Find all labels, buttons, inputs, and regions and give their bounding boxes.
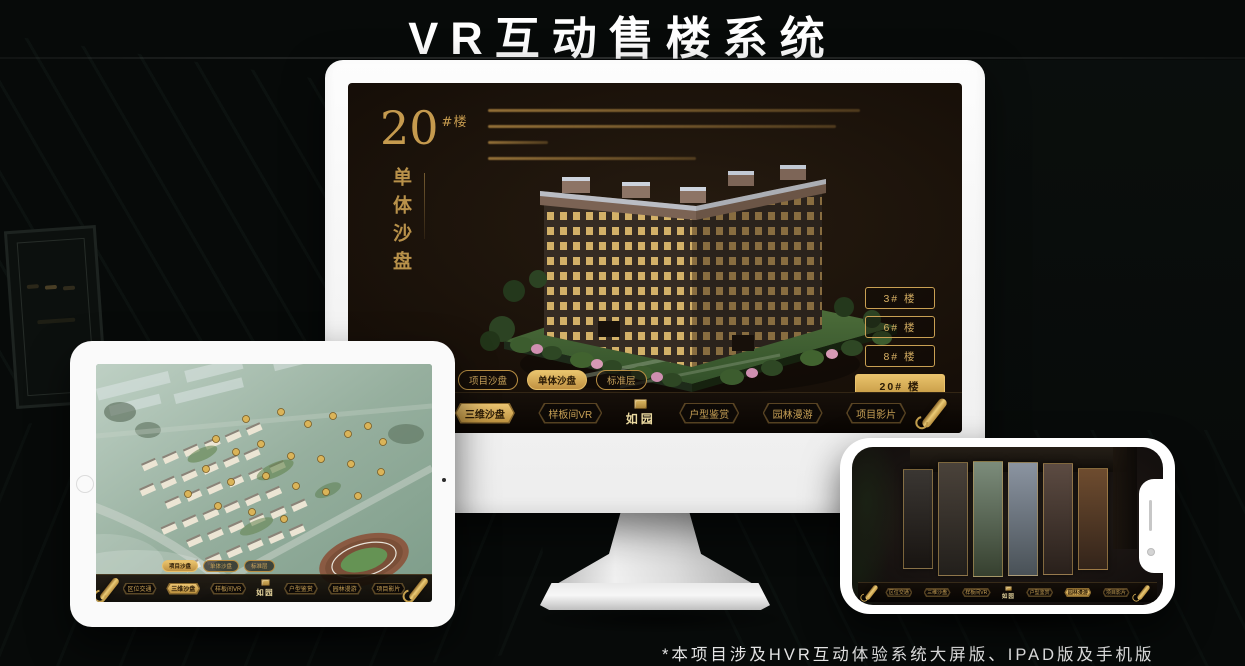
building-button-6[interactable]: 6# 楼 bbox=[865, 316, 935, 338]
seal-icon bbox=[1005, 586, 1012, 591]
gallery-panels bbox=[900, 461, 1110, 577]
text-line bbox=[488, 125, 836, 128]
tab-single-sandbox[interactable]: 单体沙盘 bbox=[203, 560, 239, 572]
camera-icon bbox=[442, 478, 446, 482]
nav-item-garden-roam[interactable]: 园林漫游 bbox=[763, 403, 823, 424]
brand-logo: 如园 bbox=[256, 579, 274, 598]
tab-standard-floor[interactable]: 标准层 bbox=[244, 560, 275, 572]
footnote: *本项目涉及HVR互动体验系统大屏版、IPAD版及手机版 bbox=[662, 641, 1155, 665]
tablet-view-tabs: 项目沙盘 单体沙盘 标准层 bbox=[162, 560, 275, 572]
camera-icon bbox=[1147, 548, 1155, 556]
nav-item-label: 园林漫游 bbox=[1068, 589, 1088, 596]
nav-item-3d-sandbox[interactable]: 三维沙盘 bbox=[455, 403, 515, 424]
tab-standard-floor[interactable]: 标准层 bbox=[596, 370, 647, 390]
nav-item-label: 项目影片 bbox=[856, 406, 896, 421]
decorative-caption-line bbox=[424, 173, 425, 239]
background-photo-tint bbox=[960, 60, 1245, 440]
scroll-icon[interactable] bbox=[1136, 584, 1150, 600]
nav-item-showroom-vr[interactable]: 样板间VR bbox=[538, 403, 602, 424]
building-button-3[interactable]: 3# 楼 bbox=[865, 287, 935, 309]
text-line bbox=[488, 109, 860, 112]
brand-name: 如园 bbox=[256, 587, 274, 598]
seal-icon bbox=[634, 399, 647, 409]
home-button[interactable] bbox=[76, 475, 94, 493]
nav-item-project-film[interactable]: 项目影片 bbox=[1103, 588, 1130, 597]
nav-item-floorplans[interactable]: 户型鉴赏 bbox=[284, 583, 318, 595]
plaque-calligraphy bbox=[27, 284, 39, 289]
gallery-panel-garden[interactable] bbox=[973, 461, 1003, 577]
plaque-calligraphy bbox=[45, 285, 57, 290]
building-button-8[interactable]: 8# 楼 bbox=[865, 345, 935, 367]
nav-item-3d-sandbox[interactable]: 三维沙盘 bbox=[166, 583, 200, 595]
nav-item-location[interactable]: 区位交通 bbox=[885, 588, 912, 597]
text-line bbox=[488, 141, 548, 144]
nav-item-label: 样板间VR bbox=[215, 584, 241, 593]
nav-item-floorplans[interactable]: 户型鉴赏 bbox=[679, 403, 739, 424]
nav-item-project-film[interactable]: 项目影片 bbox=[371, 583, 405, 595]
tablet-device: 项目沙盘 单体沙盘 标准层 区位交通 三维沙盘 样板间VR 如园 户型鉴赏 园林… bbox=[70, 341, 455, 627]
nav-item-label: 三维沙盘 bbox=[927, 589, 947, 596]
nav-item-label: 三维沙盘 bbox=[171, 584, 195, 593]
nav-item-showroom-vr[interactable]: 样板间VR bbox=[210, 583, 246, 595]
plaque-calligraphy bbox=[63, 286, 75, 291]
page-title: VR互动售楼系统 bbox=[0, 2, 1245, 67]
nav-item-label: 户型鉴赏 bbox=[689, 406, 729, 421]
nav-item-garden-roam[interactable]: 园林漫游 bbox=[328, 583, 362, 595]
monitor-stand bbox=[555, 511, 755, 585]
building-number: 20 bbox=[380, 101, 439, 155]
page: VR互动售楼系统 20#楼 单体沙盘 bbox=[0, 0, 1245, 666]
nav-item-label: 三维沙盘 bbox=[465, 406, 505, 421]
scroll-icon[interactable] bbox=[864, 584, 878, 600]
tab-project-sandbox[interactable]: 项目沙盘 bbox=[162, 560, 198, 572]
nav-item-location[interactable]: 区位交通 bbox=[123, 583, 157, 595]
building-number-heading: 20#楼 bbox=[380, 105, 467, 151]
nav-item-label: 园林漫游 bbox=[773, 406, 813, 421]
brand-logo: 如园 bbox=[1002, 586, 1015, 600]
tablet-bottom-nav: 区位交通 三维沙盘 样板间VR 如园 户型鉴赏 园林漫游 项目影片 bbox=[96, 574, 432, 602]
nav-item-label: 户型鉴赏 bbox=[1030, 589, 1050, 596]
scroll-icon[interactable] bbox=[98, 576, 120, 601]
nav-item-label: 项目影片 bbox=[376, 584, 400, 593]
scroll-icon[interactable] bbox=[408, 576, 430, 601]
gallery-panel-facade[interactable] bbox=[1043, 463, 1073, 575]
seal-icon bbox=[261, 579, 270, 586]
brand-logo: 如园 bbox=[626, 399, 656, 427]
monitor-stand-base bbox=[540, 583, 770, 610]
nav-item-label: 样板间VR bbox=[965, 589, 987, 596]
building-number-suffix: #楼 bbox=[442, 115, 468, 130]
brand-name: 如园 bbox=[1002, 592, 1015, 600]
nav-item-showroom-vr[interactable]: 样板间VR bbox=[962, 588, 991, 597]
brand-name: 如园 bbox=[626, 410, 656, 427]
gallery-panel-building[interactable] bbox=[1008, 462, 1038, 576]
tab-single-sandbox[interactable]: 单体沙盘 bbox=[527, 370, 587, 390]
nav-item-label: 园林漫游 bbox=[333, 584, 357, 593]
nav-item-floorplans[interactable]: 户型鉴赏 bbox=[1026, 588, 1053, 597]
phone-notch bbox=[1139, 479, 1165, 573]
scroll-icon[interactable] bbox=[920, 397, 948, 429]
nav-item-project-film[interactable]: 项目影片 bbox=[846, 403, 906, 424]
tab-project-sandbox[interactable]: 项目沙盘 bbox=[458, 370, 518, 390]
phone-bottom-nav: 区位交通 三维沙盘 样板间VR 如园 户型鉴赏 园林漫游 项目影片 bbox=[858, 582, 1157, 602]
building-selector: 3# 楼 6# 楼 8# 楼 20# 楼 bbox=[854, 287, 946, 399]
phone-screen: 区位交通 三维沙盘 样板间VR 如园 户型鉴赏 园林漫游 项目影片 bbox=[852, 447, 1163, 605]
gallery-panel-shelves[interactable] bbox=[1078, 468, 1108, 570]
nav-item-garden-roam[interactable]: 园林漫游 bbox=[1064, 588, 1091, 597]
gallery-panel-courtyard[interactable] bbox=[903, 469, 933, 569]
nav-item-label: 区位交通 bbox=[128, 584, 152, 593]
nav-item-label: 户型鉴赏 bbox=[289, 584, 313, 593]
nav-item-label: 区位交通 bbox=[889, 589, 909, 596]
nav-item-label: 样板间VR bbox=[548, 406, 592, 421]
tablet-screen: 项目沙盘 单体沙盘 标准层 区位交通 三维沙盘 样板间VR 如园 户型鉴赏 园林… bbox=[96, 364, 432, 602]
phone-device: 区位交通 三维沙盘 样板间VR 如园 户型鉴赏 园林漫游 项目影片 bbox=[840, 438, 1175, 614]
nav-item-label: 项目影片 bbox=[1106, 589, 1126, 596]
view-tabs: 项目沙盘 单体沙盘 标准层 bbox=[458, 370, 647, 390]
column-silhouette bbox=[1113, 447, 1137, 549]
gallery-panel-interior[interactable] bbox=[938, 462, 968, 576]
nav-item-3d-sandbox[interactable]: 三维沙盘 bbox=[924, 588, 951, 597]
speaker-icon bbox=[1149, 500, 1152, 531]
section-title-vertical: 单体沙盘 bbox=[388, 167, 415, 279]
